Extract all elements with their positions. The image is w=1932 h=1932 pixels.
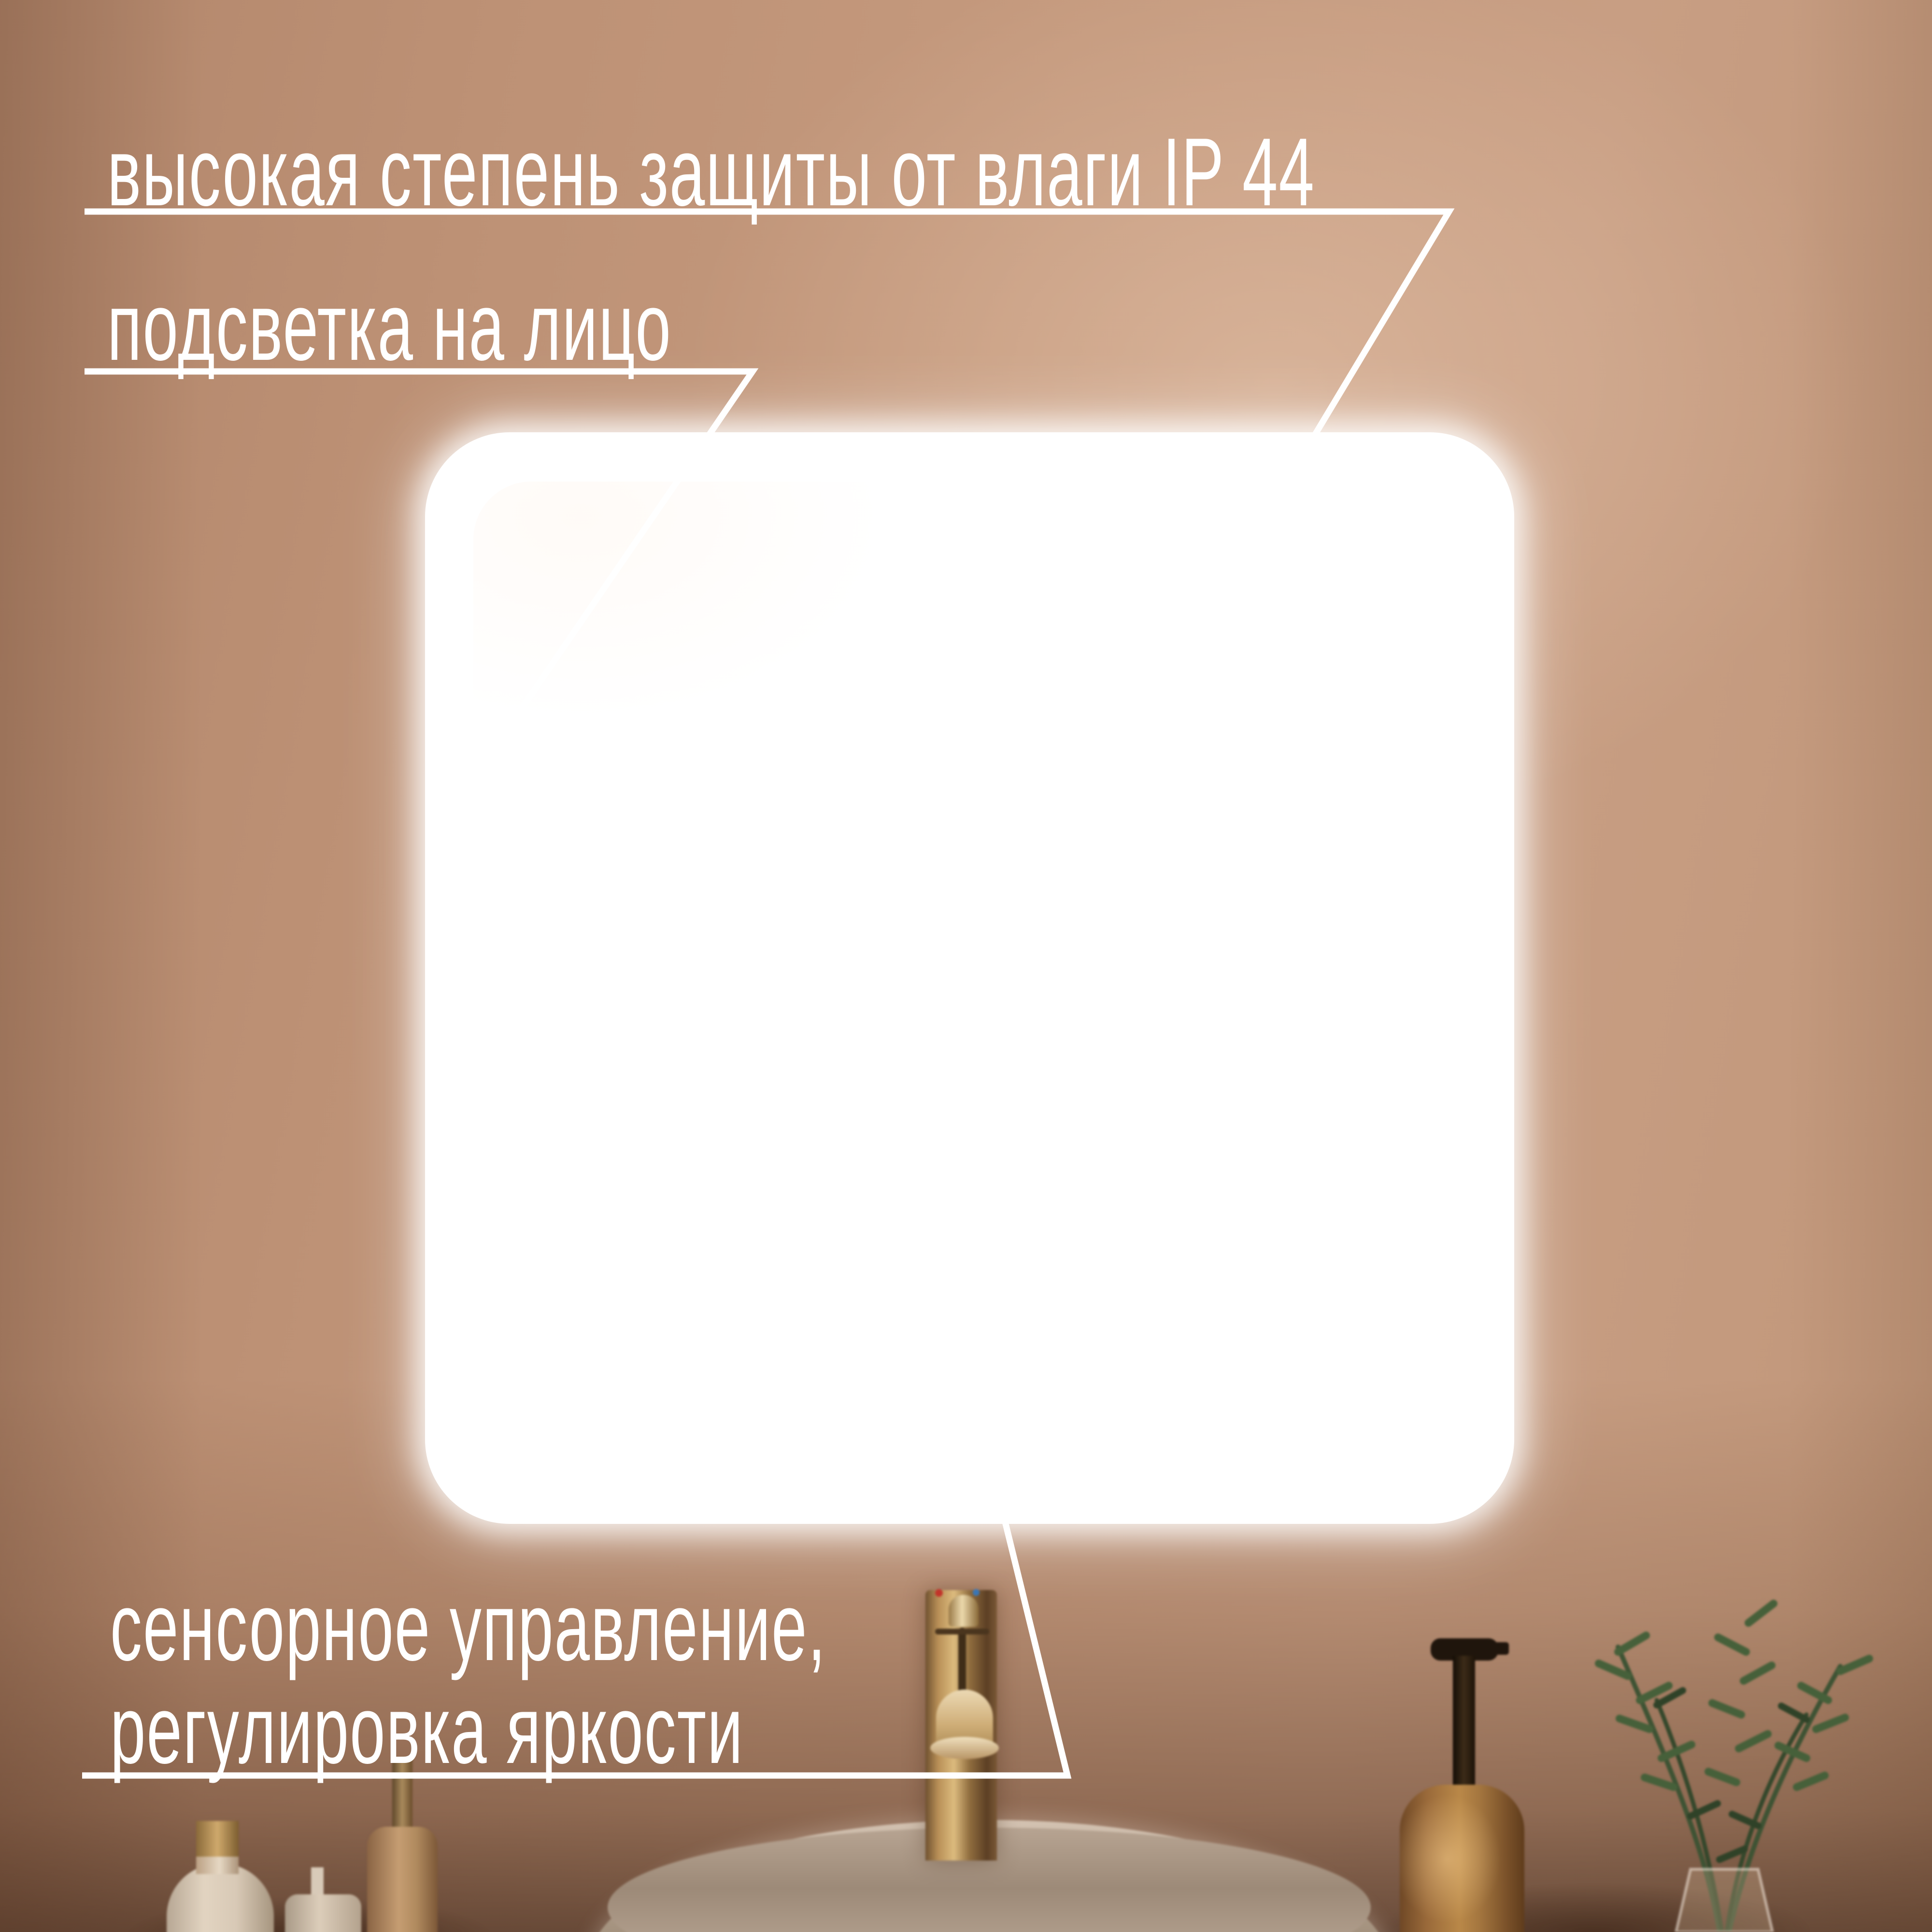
caption-touch-line2: регулировка яркости [110, 1678, 744, 1781]
amber-bottle-stem [1453, 1656, 1475, 1791]
amber-bottle-nozzle [1488, 1642, 1509, 1655]
white-bottle-stem [311, 1867, 324, 1897]
white-bottle-nozzle [282, 1835, 309, 1852]
amber-pump-bottle [1400, 1785, 1524, 1932]
glass-vase [1676, 1869, 1773, 1932]
caption-moisture-protection: высокая степень защиты от влаги IP 44 [107, 121, 1932, 224]
mirror-glass [473, 482, 1466, 1476]
mirror-led-frame [425, 432, 1514, 1524]
caption-face-light: подсветка на лицо [107, 275, 963, 378]
cream-bottle-gold-cap [196, 1821, 239, 1857]
caption-touch-control: сенсорное управление, регулировка яркост… [110, 1576, 1195, 1781]
caption-touch-line1: сенсорное управление, [110, 1576, 826, 1678]
plant [1546, 1575, 1932, 1932]
tan-pump-bottle [367, 1827, 438, 1932]
caption-face-light-text: подсветка на лицо [107, 275, 672, 378]
white-pump-bottle [285, 1894, 361, 1932]
caption-moisture-text: высокая степень защиты от влаги IP 44 [107, 121, 1315, 224]
product-image: высокая степень защиты от влаги IP 44 по… [0, 0, 1932, 1932]
mirror-reflection-sheen [473, 482, 1069, 929]
